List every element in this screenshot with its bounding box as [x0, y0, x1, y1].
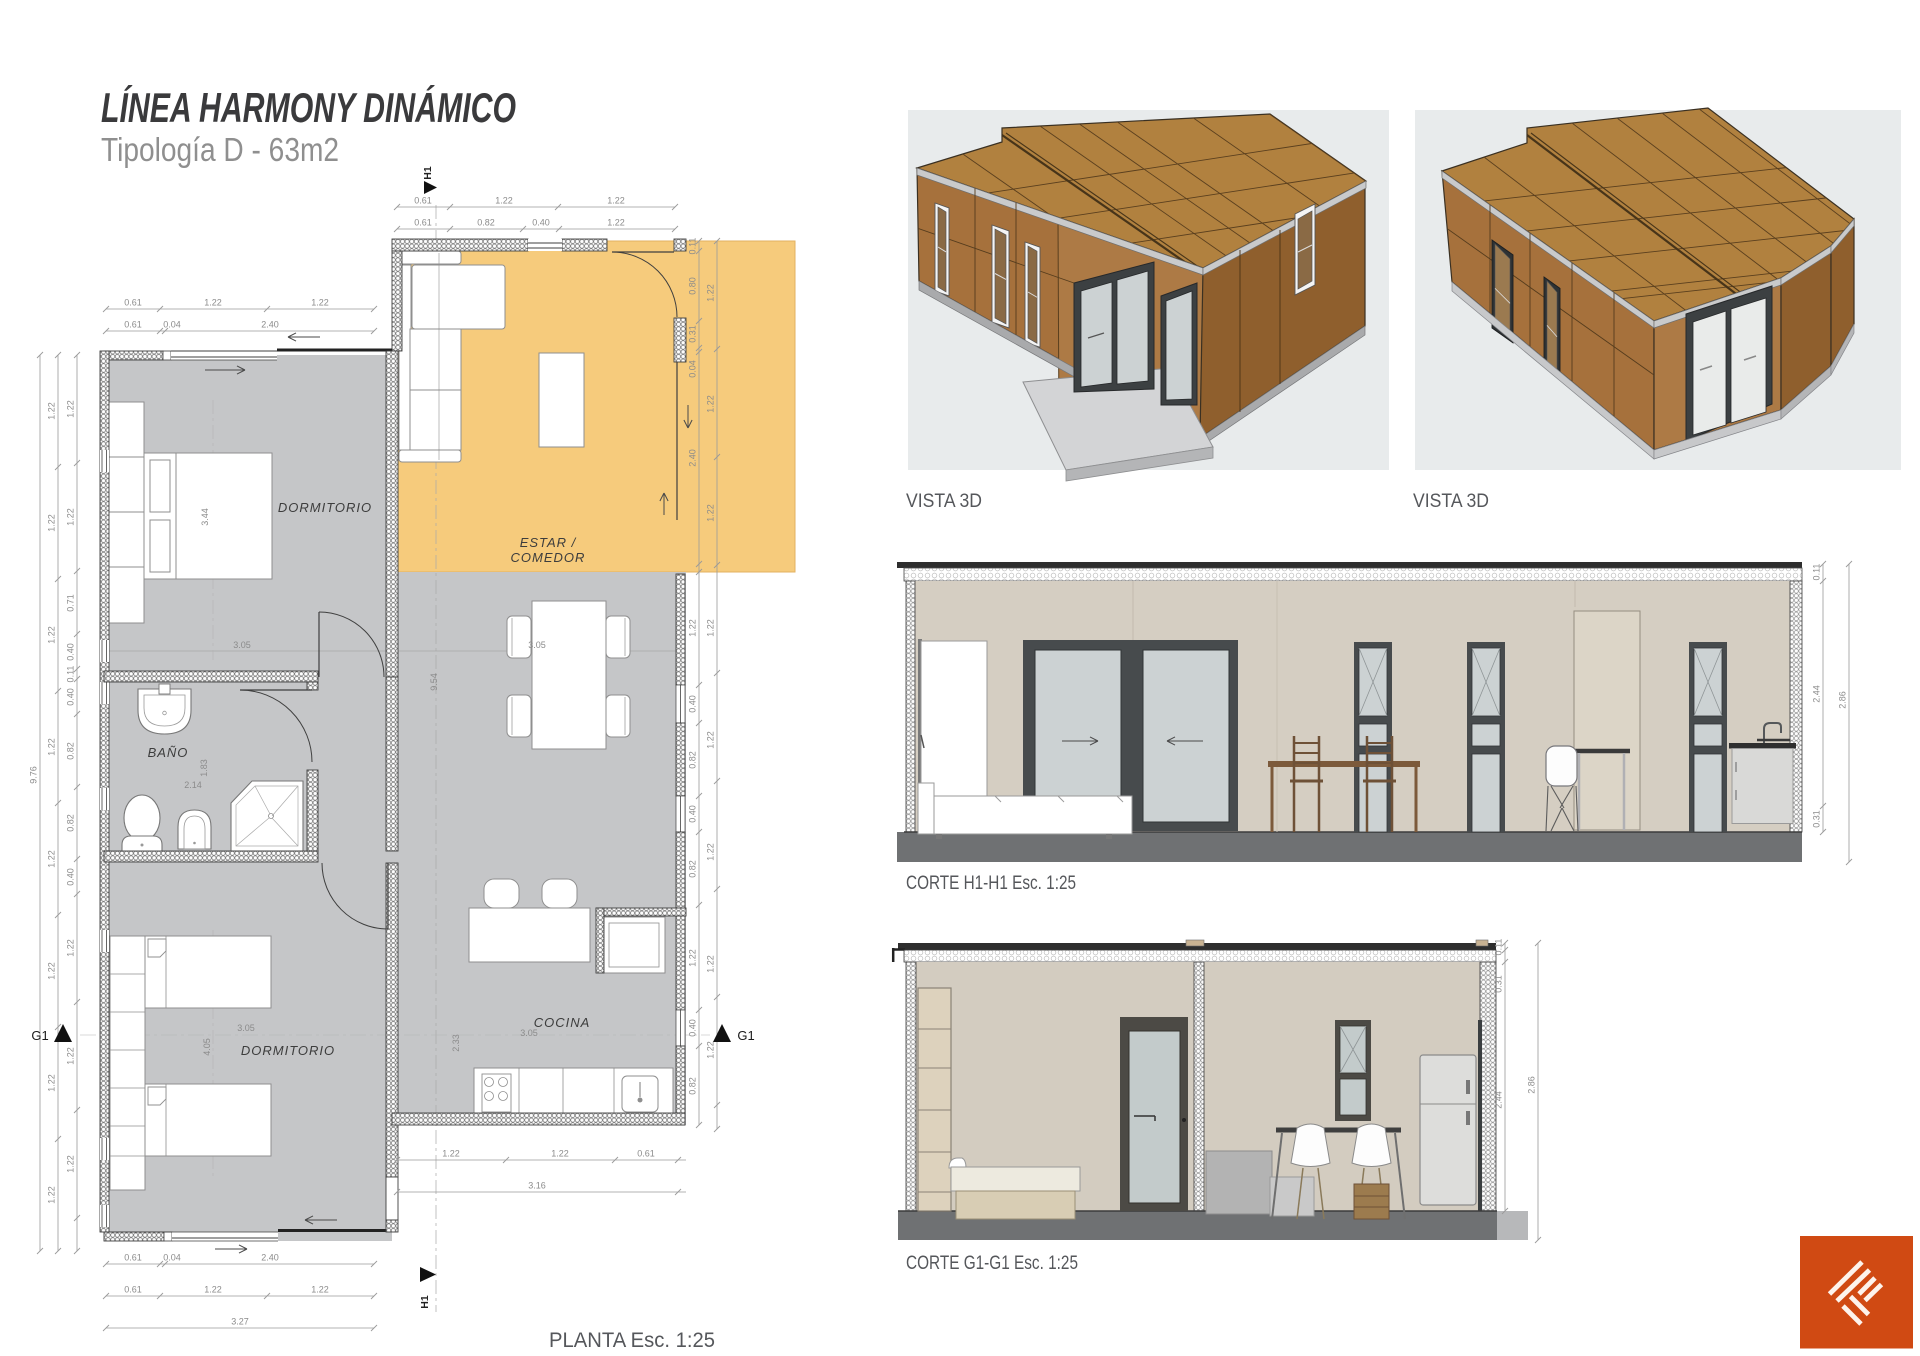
- svg-text:0.04: 0.04: [163, 1253, 181, 1263]
- svg-text:Tipología D - 63m2: Tipología D - 63m2: [101, 131, 339, 168]
- svg-text:0.82: 0.82: [688, 751, 698, 769]
- svg-text:0.82: 0.82: [66, 742, 76, 760]
- svg-text:0.82: 0.82: [688, 860, 698, 878]
- svg-text:1.22: 1.22: [607, 196, 625, 206]
- svg-text:1.22: 1.22: [47, 1074, 57, 1092]
- svg-text:ESTAR /: ESTAR /: [520, 535, 577, 550]
- svg-text:0.31: 0.31: [1494, 975, 1504, 993]
- svg-text:1.22: 1.22: [66, 508, 76, 526]
- svg-text:3.05: 3.05: [520, 1028, 538, 1038]
- svg-text:9.76: 9.76: [29, 766, 39, 784]
- svg-text:1.22: 1.22: [551, 1149, 569, 1159]
- svg-text:1.22: 1.22: [204, 1285, 222, 1295]
- svg-text:1.22: 1.22: [47, 1186, 57, 1204]
- svg-text:1.22: 1.22: [66, 1155, 76, 1173]
- svg-text:H1: H1: [422, 166, 434, 180]
- svg-text:3.05: 3.05: [233, 640, 251, 650]
- svg-text:COMEDOR: COMEDOR: [511, 550, 586, 565]
- svg-text:0.80: 0.80: [688, 277, 698, 295]
- svg-text:0.04: 0.04: [688, 360, 698, 378]
- svg-text:BAÑO: BAÑO: [148, 745, 189, 760]
- svg-text:G1: G1: [31, 1028, 48, 1043]
- svg-text:2.86: 2.86: [1527, 1076, 1537, 1094]
- svg-text:0.11: 0.11: [66, 666, 76, 683]
- svg-text:1.22: 1.22: [706, 1041, 716, 1059]
- svg-text:0.40: 0.40: [688, 695, 698, 713]
- svg-text:0.61: 0.61: [124, 1285, 142, 1295]
- svg-text:1.22: 1.22: [706, 843, 716, 861]
- svg-text:3.16: 3.16: [528, 1181, 546, 1191]
- svg-text:1.22: 1.22: [706, 955, 716, 973]
- svg-text:0.40: 0.40: [688, 1019, 698, 1037]
- svg-text:1.22: 1.22: [66, 1047, 76, 1065]
- svg-text:1.22: 1.22: [706, 619, 716, 637]
- svg-text:1.22: 1.22: [607, 218, 625, 228]
- svg-text:CORTE H1-H1 Esc. 1:25: CORTE H1-H1 Esc. 1:25: [906, 873, 1076, 894]
- svg-text:0.61: 0.61: [124, 298, 142, 308]
- svg-text:0.40: 0.40: [66, 868, 76, 886]
- svg-text:1.22: 1.22: [204, 298, 222, 308]
- svg-text:0.11: 0.11: [688, 238, 698, 255]
- svg-text:1.22: 1.22: [47, 962, 57, 980]
- svg-text:9.54: 9.54: [429, 673, 439, 691]
- svg-text:3.05: 3.05: [237, 1023, 255, 1033]
- svg-text:0.82: 0.82: [688, 1077, 698, 1095]
- svg-text:1.22: 1.22: [311, 1285, 329, 1295]
- svg-text:0.31: 0.31: [688, 325, 698, 343]
- svg-text:2.33: 2.33: [451, 1034, 461, 1052]
- svg-text:0.61: 0.61: [124, 320, 142, 330]
- svg-text:0.71: 0.71: [66, 594, 76, 612]
- svg-text:DORMITORIO: DORMITORIO: [278, 500, 372, 515]
- svg-text:1.22: 1.22: [66, 939, 76, 957]
- svg-text:0.40: 0.40: [66, 643, 76, 661]
- svg-text:0.11: 0.11: [1494, 939, 1504, 956]
- svg-text:3.44: 3.44: [200, 508, 210, 526]
- svg-text:2.86: 2.86: [1838, 691, 1848, 709]
- svg-text:3.05: 3.05: [528, 640, 546, 650]
- svg-text:1.22: 1.22: [47, 514, 57, 532]
- svg-text:0.11: 0.11: [1812, 564, 1822, 581]
- svg-text:0.61: 0.61: [414, 196, 432, 206]
- svg-text:0.40: 0.40: [532, 218, 550, 228]
- svg-text:4.05: 4.05: [202, 1038, 212, 1056]
- svg-text:1.22: 1.22: [495, 196, 513, 206]
- svg-text:1.22: 1.22: [47, 626, 57, 644]
- svg-text:1.22: 1.22: [706, 395, 716, 413]
- svg-text:1.22: 1.22: [442, 1149, 460, 1159]
- svg-text:0.61: 0.61: [124, 1253, 142, 1263]
- svg-text:0.40: 0.40: [66, 688, 76, 706]
- svg-text:G1: G1: [737, 1028, 754, 1043]
- svg-text:VISTA 3D: VISTA 3D: [906, 491, 982, 512]
- svg-text:0.82: 0.82: [66, 814, 76, 832]
- svg-text:0.31: 0.31: [1812, 810, 1822, 828]
- svg-text:0.04: 0.04: [163, 320, 181, 330]
- svg-text:1.22: 1.22: [688, 949, 698, 967]
- svg-text:1.22: 1.22: [706, 504, 716, 522]
- svg-text:PLANTA Esc. 1:25: PLANTA Esc. 1:25: [549, 1329, 715, 1352]
- svg-text:CORTE G1-G1 Esc. 1:25: CORTE G1-G1 Esc. 1:25: [906, 1253, 1078, 1274]
- svg-text:3.27: 3.27: [231, 1317, 249, 1327]
- svg-text:1.22: 1.22: [706, 284, 716, 302]
- svg-text:2.40: 2.40: [261, 1253, 279, 1263]
- svg-text:1.22: 1.22: [688, 619, 698, 637]
- svg-text:DORMITORIO: DORMITORIO: [241, 1043, 335, 1058]
- svg-text:2.44: 2.44: [1812, 685, 1822, 703]
- svg-text:2.40: 2.40: [261, 320, 279, 330]
- svg-text:1.22: 1.22: [66, 400, 76, 418]
- svg-text:1.83: 1.83: [199, 759, 209, 777]
- svg-text:COCINA: COCINA: [534, 1015, 591, 1030]
- svg-text:2.44: 2.44: [1494, 1091, 1504, 1109]
- svg-text:H1: H1: [419, 1295, 431, 1309]
- svg-text:VISTA 3D: VISTA 3D: [1413, 491, 1489, 512]
- svg-text:1.22: 1.22: [706, 731, 716, 749]
- svg-text:LÍNEA HARMONY DINÁMICO: LÍNEA HARMONY DINÁMICO: [101, 84, 516, 131]
- svg-text:0.61: 0.61: [637, 1149, 655, 1159]
- svg-text:0.82: 0.82: [477, 218, 495, 228]
- svg-text:1.22: 1.22: [47, 738, 57, 756]
- svg-text:0.61: 0.61: [414, 218, 432, 228]
- svg-text:1.22: 1.22: [47, 402, 57, 420]
- svg-text:1.22: 1.22: [311, 298, 329, 308]
- svg-text:2.40: 2.40: [688, 449, 698, 467]
- svg-text:2.14: 2.14: [184, 780, 202, 790]
- svg-text:1.22: 1.22: [47, 850, 57, 868]
- svg-text:0.40: 0.40: [688, 805, 698, 823]
